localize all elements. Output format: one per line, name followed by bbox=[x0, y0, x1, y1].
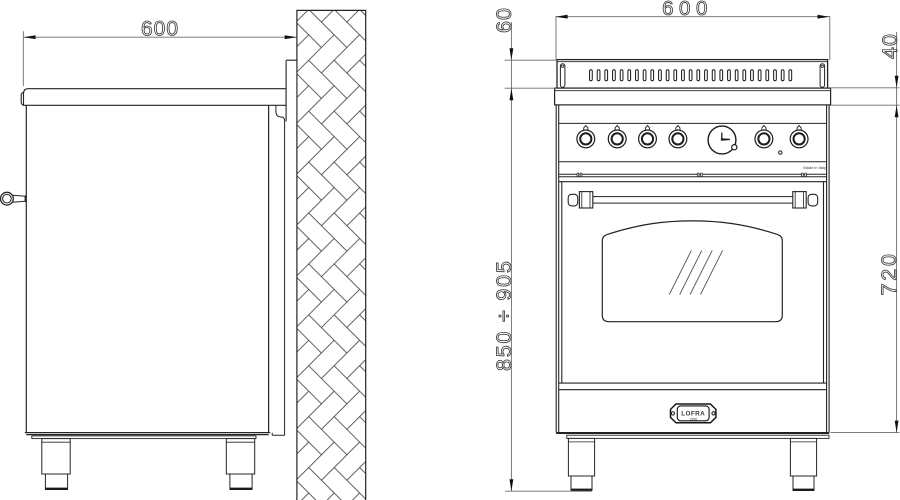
svg-text:1956: 1956 bbox=[689, 418, 697, 422]
svg-text:40: 40 bbox=[878, 33, 900, 59]
svg-text:Made in Italy: Made in Italy bbox=[803, 165, 826, 170]
svg-text:600: 600 bbox=[141, 17, 179, 40]
svg-text:720: 720 bbox=[877, 251, 900, 295]
svg-text:600: 600 bbox=[662, 0, 713, 20]
svg-text:LOFRA: LOFRA bbox=[681, 411, 705, 418]
svg-text:60: 60 bbox=[492, 7, 516, 33]
svg-text:850 ÷ 905: 850 ÷ 905 bbox=[492, 259, 516, 371]
